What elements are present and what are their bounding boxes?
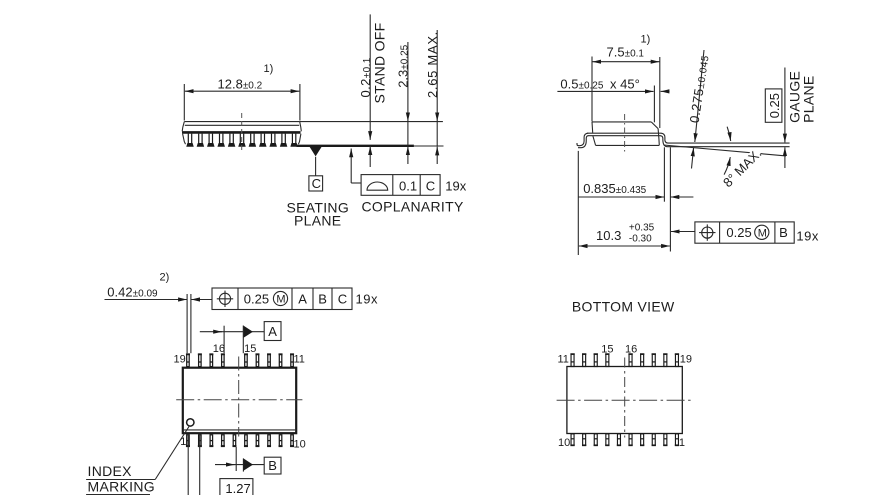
svg-text:12.8±0.2: 12.8±0.2 <box>218 76 263 91</box>
svg-text:-0.30: -0.30 <box>629 234 652 245</box>
svg-text:0.835±0.435: 0.835±0.435 <box>583 181 646 196</box>
svg-text:16: 16 <box>213 343 225 355</box>
svg-text:7.5±0.1: 7.5±0.1 <box>607 45 645 60</box>
svg-text:1: 1 <box>679 437 685 449</box>
svg-text:STAND OFF: STAND OFF <box>372 23 388 104</box>
svg-text:11: 11 <box>294 354 305 366</box>
svg-text:2.65 MAX.: 2.65 MAX. <box>425 31 440 98</box>
svg-text:PLANE: PLANE <box>294 213 341 229</box>
svg-text:1): 1) <box>264 63 274 75</box>
svg-text:15: 15 <box>244 343 256 355</box>
svg-text:M: M <box>758 227 767 239</box>
svg-text:19x: 19x <box>445 178 466 193</box>
svg-text:19x: 19x <box>796 229 818 244</box>
svg-text:16: 16 <box>625 344 637 356</box>
svg-text:2): 2) <box>160 271 170 283</box>
svg-text:0.5±0.25 x 45°: 0.5±0.25 x 45° <box>560 76 639 91</box>
svg-text:PLANE: PLANE <box>800 75 816 122</box>
svg-text:INDEX: INDEX <box>88 463 133 479</box>
svg-text:0.1: 0.1 <box>399 178 417 193</box>
svg-text:11: 11 <box>558 354 569 366</box>
svg-text:19x: 19x <box>356 291 378 306</box>
svg-text:B: B <box>779 225 788 240</box>
svg-text:19: 19 <box>174 354 186 366</box>
svg-text:B: B <box>268 458 277 473</box>
svg-text:0.42±0.09: 0.42±0.09 <box>107 284 158 299</box>
svg-text:0.25: 0.25 <box>767 93 782 118</box>
svg-text:10.3: 10.3 <box>596 228 621 243</box>
svg-text:15: 15 <box>601 344 613 356</box>
svg-text:C: C <box>338 291 347 306</box>
svg-text:+0.35: +0.35 <box>629 222 655 233</box>
svg-text:COPLANARITY: COPLANARITY <box>362 199 464 215</box>
svg-text:1.27: 1.27 <box>225 481 250 495</box>
svg-text:B: B <box>318 291 327 306</box>
svg-text:MARKING: MARKING <box>88 478 155 494</box>
svg-text:M: M <box>276 294 285 306</box>
svg-text:A: A <box>298 291 307 306</box>
svg-text:0.275±0.045: 0.275±0.045 <box>687 54 712 124</box>
svg-text:0.25: 0.25 <box>244 291 269 306</box>
svg-text:2.3±0.25: 2.3±0.25 <box>396 44 411 87</box>
svg-text:C: C <box>426 178 435 193</box>
svg-text:19: 19 <box>680 354 692 366</box>
svg-text:0.25: 0.25 <box>726 225 751 240</box>
svg-text:A: A <box>268 324 277 339</box>
svg-text:BOTTOM VIEW: BOTTOM VIEW <box>572 299 675 315</box>
svg-text:10: 10 <box>558 437 570 449</box>
svg-text:C: C <box>312 176 321 191</box>
svg-text:10: 10 <box>294 439 306 451</box>
svg-text:1): 1) <box>641 33 651 45</box>
